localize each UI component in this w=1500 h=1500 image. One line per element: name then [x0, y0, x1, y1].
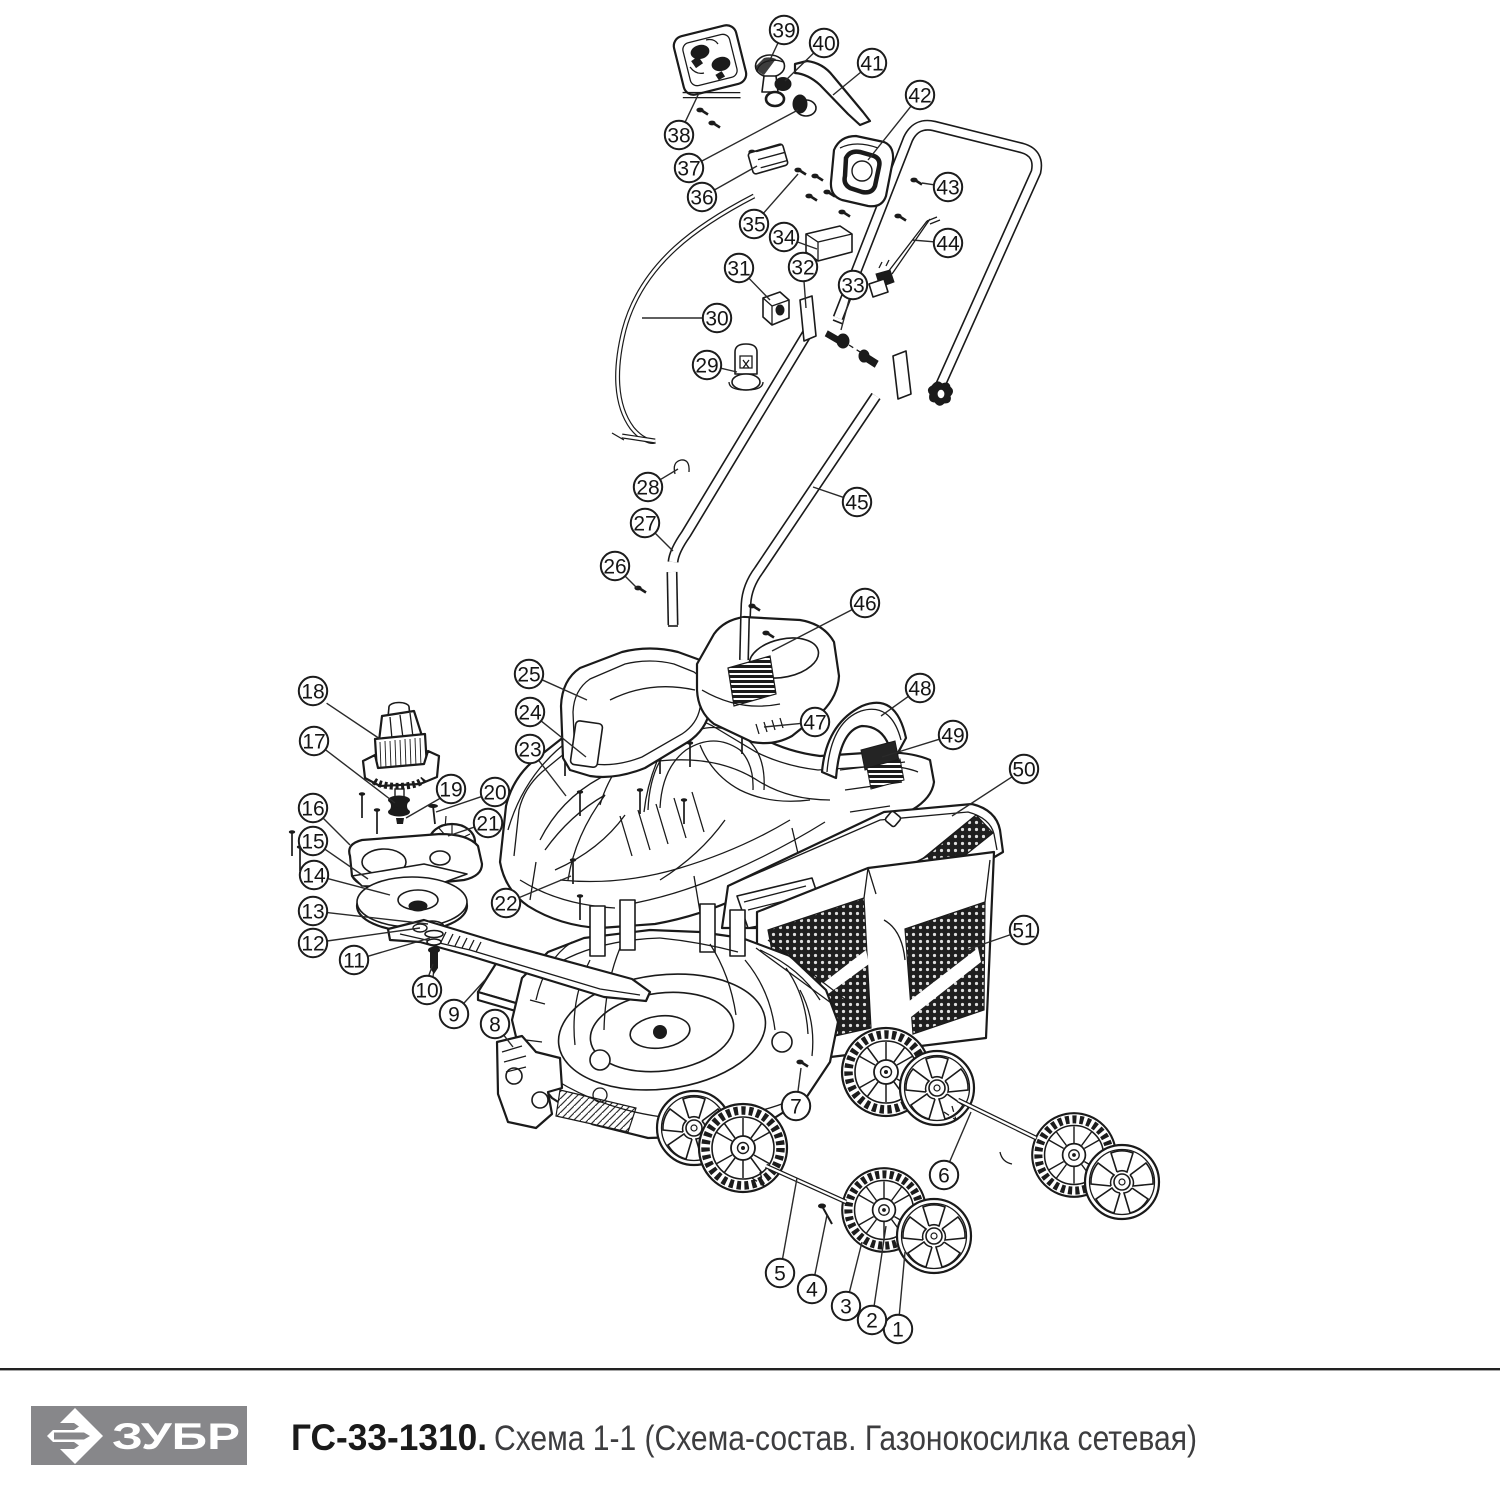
svg-text:25: 25	[517, 664, 540, 687]
svg-text:8: 8	[489, 1014, 501, 1037]
svg-text:18: 18	[301, 681, 324, 704]
svg-text:51: 51	[1012, 920, 1035, 943]
svg-text:ЗУБР: ЗУБР	[112, 1416, 240, 1457]
svg-text:15: 15	[301, 831, 324, 854]
svg-text:4: 4	[806, 1279, 818, 1302]
svg-text:35: 35	[742, 214, 765, 237]
svg-text:40: 40	[812, 33, 835, 56]
svg-text:5: 5	[774, 1263, 786, 1286]
svg-text:45: 45	[845, 492, 868, 515]
svg-text:19: 19	[439, 779, 462, 802]
svg-text:21: 21	[476, 813, 499, 836]
svg-text:49: 49	[941, 725, 964, 748]
svg-text:36: 36	[690, 187, 713, 210]
svg-text:43: 43	[936, 177, 959, 200]
svg-text:47: 47	[803, 712, 826, 735]
svg-text:11: 11	[343, 950, 365, 973]
svg-text:17: 17	[302, 731, 325, 754]
svg-text:24: 24	[518, 702, 542, 725]
svg-text:2: 2	[866, 1310, 878, 1333]
svg-text:38: 38	[667, 125, 690, 148]
svg-text:9: 9	[448, 1004, 460, 1027]
svg-text:23: 23	[518, 739, 541, 762]
svg-text:32: 32	[791, 257, 814, 280]
svg-text:41: 41	[860, 53, 883, 76]
svg-text:Схема 1-1 (Схема-состав. Газон: Схема 1-1 (Схема-состав. Газонокосилка с…	[494, 1419, 1197, 1458]
svg-text:39: 39	[772, 20, 795, 43]
svg-text:44: 44	[936, 233, 960, 256]
svg-text:37: 37	[677, 158, 700, 181]
svg-text:22: 22	[494, 893, 517, 916]
svg-text:29: 29	[695, 355, 718, 378]
svg-text:46: 46	[853, 593, 876, 616]
svg-text:26: 26	[603, 556, 626, 579]
svg-text:34: 34	[772, 227, 796, 250]
svg-text:42: 42	[908, 85, 931, 108]
svg-text:6: 6	[938, 1165, 950, 1188]
svg-text:14: 14	[302, 865, 326, 888]
svg-text:13: 13	[301, 901, 324, 924]
svg-text:33: 33	[841, 275, 864, 298]
svg-text:3: 3	[840, 1296, 852, 1319]
svg-text:1: 1	[892, 1319, 904, 1342]
svg-text:ГС-33-1310.: ГС-33-1310.	[291, 1417, 487, 1458]
svg-text:30: 30	[705, 308, 728, 331]
svg-text:28: 28	[636, 477, 659, 500]
svg-text:31: 31	[727, 258, 750, 281]
svg-text:7: 7	[790, 1096, 802, 1119]
svg-text:16: 16	[301, 798, 324, 821]
svg-text:27: 27	[633, 513, 656, 536]
svg-text:50: 50	[1012, 759, 1035, 782]
svg-text:48: 48	[908, 678, 931, 701]
svg-text:10: 10	[415, 980, 438, 1003]
svg-text:20: 20	[483, 782, 506, 805]
svg-text:12: 12	[301, 933, 324, 956]
